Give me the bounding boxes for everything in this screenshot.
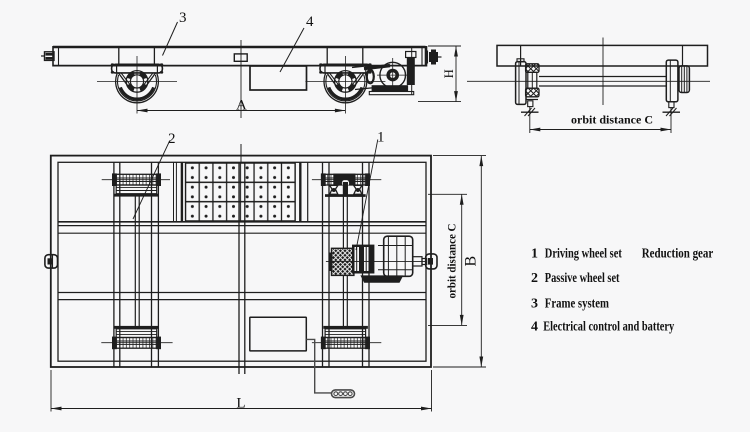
svg-text:2: 2 bbox=[531, 271, 538, 286]
svg-text:2: 2 bbox=[168, 131, 176, 147]
svg-text:Frame system: Frame system bbox=[545, 297, 609, 312]
svg-text:Passive wheel set: Passive wheel set bbox=[545, 271, 620, 286]
svg-text:orbit distance C: orbit distance C bbox=[571, 113, 653, 127]
svg-text:4: 4 bbox=[531, 320, 538, 335]
svg-text:Driving wheel set: Driving wheel set bbox=[545, 247, 622, 262]
svg-text:1: 1 bbox=[377, 130, 385, 146]
svg-text:1: 1 bbox=[531, 247, 538, 262]
svg-text:4: 4 bbox=[306, 14, 314, 30]
svg-text:3: 3 bbox=[531, 297, 538, 312]
svg-text:3: 3 bbox=[179, 10, 187, 26]
svg-text:Electrical control and battery: Electrical control and battery bbox=[543, 320, 674, 335]
svg-text:H: H bbox=[442, 69, 456, 78]
svg-text:A: A bbox=[236, 98, 247, 114]
svg-text:Reduction gear: Reduction gear bbox=[642, 247, 714, 262]
svg-text:orbit distance C: orbit distance C bbox=[447, 224, 459, 299]
svg-text:L: L bbox=[236, 396, 245, 412]
svg-text:B: B bbox=[462, 256, 479, 267]
